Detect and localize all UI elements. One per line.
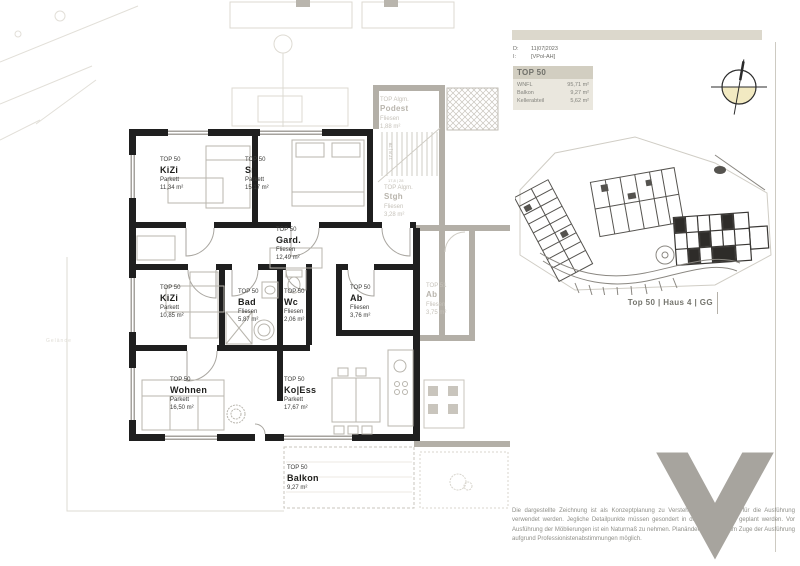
room-label-kizi-2: TOP 50 KiZi Parkett 10,85 m²: [160, 284, 184, 320]
room-floor: Parkett: [160, 176, 183, 184]
site-plan-caption: Top 50 | Haus 4 | GG: [515, 298, 713, 307]
room-area: 10,85 m²: [160, 312, 184, 320]
room-name: Gard.: [276, 234, 301, 246]
date-label: D:: [513, 45, 531, 53]
room-unit: TOP Algm.: [384, 184, 413, 192]
unit-row-balkon: Balkon 9,27 m²: [517, 90, 589, 98]
room-label-wc: TOP 50 Wc Fliesen 2,06 m²: [284, 288, 304, 324]
room-floor: Fliesen: [284, 308, 304, 316]
room-label-sr: TOP 50 Sr Parkett 15,17 m²: [245, 156, 269, 192]
stair-note-text: 17,8 | 28: [388, 178, 404, 183]
room-label-balkon: TOP 50 Balkon 9,27 m²: [287, 464, 319, 492]
room-area: 17,67 m²: [284, 404, 316, 412]
hatched-shaft: [447, 88, 498, 130]
room-area: 12,49 m²: [276, 254, 301, 262]
room-unit: TOP 50: [160, 284, 184, 292]
unit-row-value: 95,71 m²: [567, 82, 589, 90]
room-floor: Fliesen: [276, 246, 301, 254]
rev-value: [VPol-AH]: [531, 53, 555, 61]
room-unit: TOP 50: [284, 376, 316, 384]
room-area: 3,75 m²: [426, 309, 446, 317]
room-area: 3,76 m²: [350, 312, 370, 320]
room-floor: Parkett: [245, 176, 269, 184]
room-floor: Parkett: [160, 304, 184, 312]
room-name: Balkon: [287, 472, 319, 484]
room-label-koess: TOP 50 Ko|Ess Parkett 17,67 m²: [284, 376, 316, 412]
room-name: Podest: [380, 104, 409, 115]
unit-row-label: WNFL: [517, 82, 533, 90]
unit-row-kellerabteil: Kellerabteil 5,62 m²: [517, 98, 589, 106]
room-unit: TOP 50: [238, 288, 258, 296]
leaf-scribble: [450, 474, 472, 490]
wall-stub: [384, 0, 398, 7]
floorplan-sheet: 17,8 | 28 17,8 | 28: [0, 0, 800, 566]
room-area: 9,27 m²: [287, 484, 319, 492]
room-label-bad: TOP 50 Bad Fliesen 5,87 m²: [238, 288, 258, 324]
room-label-kizi-1: TOP 50 KiZi Parkett 11,34 m²: [160, 156, 183, 192]
room-label-ab: TOP 50 Ab Fliesen 3,76 m²: [350, 284, 370, 320]
room-unit: TOP 50: [170, 376, 207, 384]
panel-top-band: [512, 30, 762, 40]
room-name: Ab: [350, 292, 370, 304]
neighbor-outlines: [230, 2, 454, 126]
neighbor-unit-walls: [414, 225, 510, 508]
room-label-wohnen: TOP 50 Wohnen Parkett 16,50 m²: [170, 376, 207, 412]
unit-row-label: Balkon: [517, 90, 534, 98]
caption-divider: [717, 292, 718, 314]
room-name: Ab: [426, 290, 446, 301]
room-floor: Fliesen: [238, 308, 258, 316]
room-name: Wohnen: [170, 384, 207, 396]
wall-stub: [296, 0, 310, 7]
unit-row-value: 9,27 m²: [570, 90, 589, 98]
room-name: Bad: [238, 296, 258, 308]
room-area: 3,28 m²: [384, 211, 413, 219]
terrain-label: Gelände: [46, 338, 72, 344]
room-name: KiZi: [160, 292, 184, 304]
date-value: 11|07|2023: [531, 45, 558, 53]
compass-icon: [708, 56, 772, 120]
room-name: Stgh: [384, 192, 413, 203]
room-area: 15,17 m²: [245, 184, 269, 192]
rev-label: I:: [513, 53, 531, 61]
room-unit: TOP 50: [284, 288, 304, 296]
room-name: KiZi: [160, 164, 183, 176]
room-name: Wc: [284, 296, 304, 308]
room-name: Sr: [245, 164, 269, 176]
room-area: 11,34 m²: [160, 184, 183, 192]
room-floor: Parkett: [284, 396, 316, 404]
room-area: 5,87 m²: [238, 316, 258, 324]
room-label-gard: TOP 50 Gard. Fliesen 12,49 m²: [276, 226, 301, 262]
room-name: Ko|Ess: [284, 384, 316, 396]
room-unit: TOP 50: [350, 284, 370, 292]
room-floor: Fliesen: [384, 203, 413, 211]
room-unit: TOP 51: [426, 282, 446, 290]
room-unit: TOP 50: [276, 226, 301, 234]
room-label-top51-ab: TOP 51 Ab Fliesen 3,75 m²: [426, 282, 446, 317]
room-unit: TOP 50: [287, 464, 319, 472]
plan-meta: D: 11|07|2023 I: [VPol-AH]: [513, 45, 558, 62]
unit-row-wnfl: WNFL 95,71 m²: [517, 82, 589, 90]
stair-note-text: 17,8 | 28: [388, 142, 393, 160]
room-floor: Fliesen: [426, 301, 446, 309]
unit-row-label: Kellerabteil: [517, 98, 544, 106]
site-plan-drawing: [515, 135, 775, 295]
company-logo-v-icon: [652, 448, 778, 564]
room-label-podest: TOP Algm. Podest Fliesen 1,88 m²: [380, 96, 409, 131]
room-unit: TOP Algm.: [380, 96, 409, 104]
room-floor: Fliesen: [350, 304, 370, 312]
unit-row-value: 5,62 m²: [570, 98, 589, 106]
unit-title: TOP 50: [513, 66, 593, 79]
room-label-stgh: TOP Algm. Stgh Fliesen 3,28 m²: [384, 184, 413, 219]
room-unit: TOP 50: [245, 156, 269, 164]
room-area: 1,88 m²: [380, 123, 409, 131]
room-unit: TOP 50: [160, 156, 183, 164]
plant-symbol: [227, 405, 245, 423]
room-floor: Fliesen: [380, 115, 409, 123]
terrain-sketch-lines: [0, 6, 138, 140]
room-floor: Parkett: [170, 396, 207, 404]
unit-info-box: TOP 50 WNFL 95,71 m² Balkon 9,27 m² Kell…: [513, 66, 593, 110]
room-area: 16,50 m²: [170, 404, 207, 412]
room-area: 2,06 m²: [284, 316, 304, 324]
